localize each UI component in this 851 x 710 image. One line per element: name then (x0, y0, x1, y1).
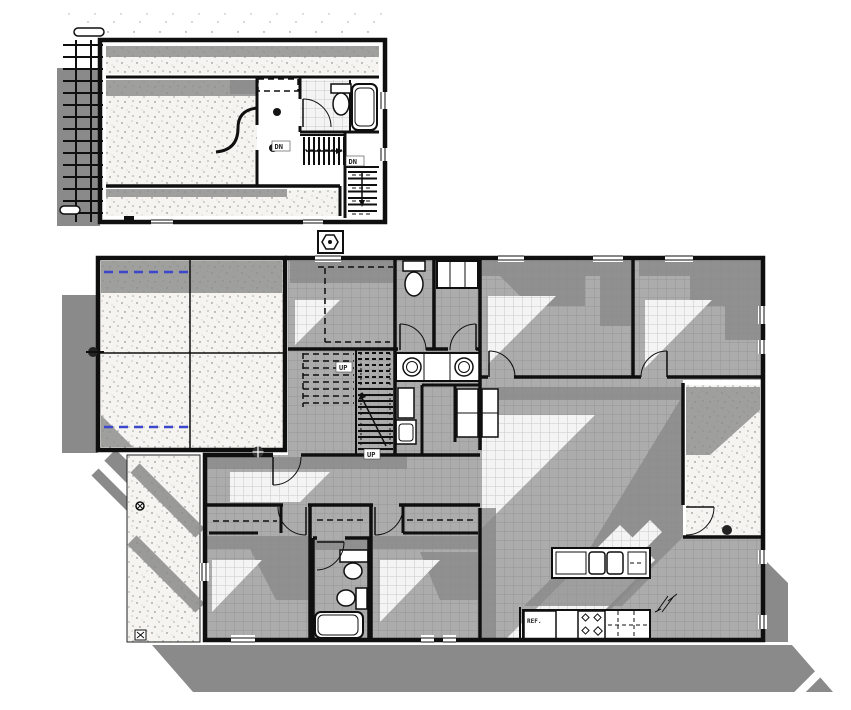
dn-label-2: DN (346, 156, 364, 166)
toilet (337, 590, 355, 606)
toilet-tank (331, 84, 351, 93)
toilet (405, 272, 423, 296)
up-label-1: UP (336, 362, 352, 372)
roof-stipple (66, 10, 388, 36)
toilet-tank (356, 588, 367, 609)
toilet-tank (403, 261, 425, 271)
post-marker (124, 216, 134, 223)
upper-closet-dashed (258, 79, 298, 91)
dn-text-1: DN (275, 143, 283, 151)
fixture-symbol (273, 108, 281, 116)
dn-text-2: DN (349, 158, 357, 166)
patio (686, 385, 762, 535)
vanity-counter (396, 353, 480, 381)
toilet (333, 93, 349, 115)
garage (86, 258, 285, 450)
main-floor-plan: REF. (62, 231, 851, 699)
dresser (437, 261, 478, 288)
vanity (396, 353, 480, 381)
bath-counter (340, 550, 368, 562)
floor-plan-drawing: DN DN (0, 0, 851, 710)
bath-sink (344, 563, 362, 579)
ref-label: REF. (527, 618, 541, 625)
upper-plan-shadow (57, 68, 100, 226)
up-text-1: UP (339, 364, 347, 372)
front-walkway (127, 455, 200, 642)
patio-light-symbol (722, 525, 732, 535)
up-label-2: UP (364, 449, 380, 459)
floor-plan-canvas: DN DN (0, 0, 851, 710)
up-text-2: UP (367, 451, 375, 459)
dn-label-1: DN (272, 141, 290, 151)
upper-floor-plan: DN DN (57, 10, 388, 226)
upper-bathroom (300, 77, 379, 132)
cabinet (398, 388, 414, 418)
